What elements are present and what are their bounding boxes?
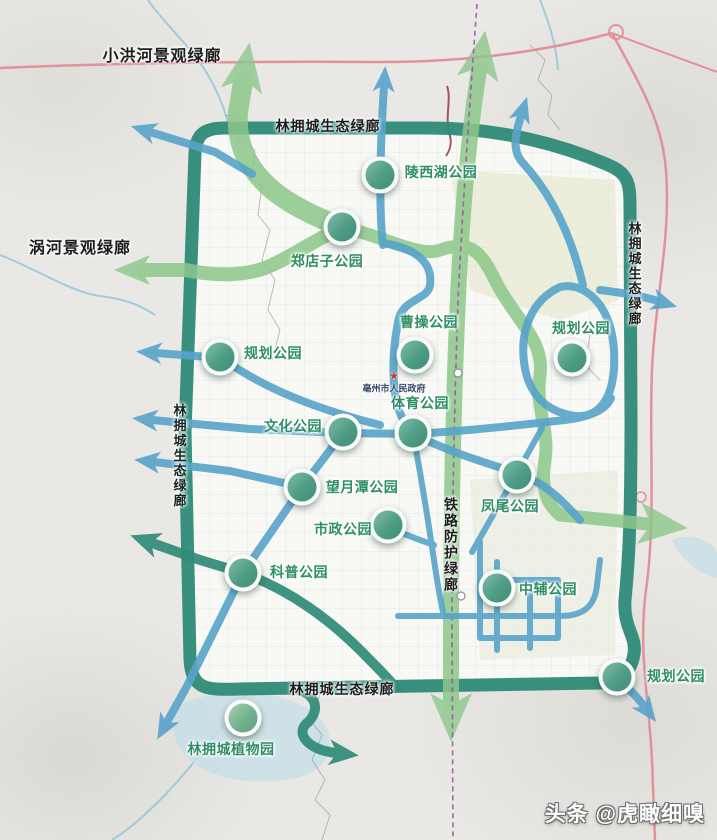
park-marker bbox=[395, 415, 432, 452]
park-label: 规划公园 bbox=[244, 343, 302, 363]
star-icon: ★ bbox=[362, 372, 425, 382]
park-label: 市政公园 bbox=[314, 519, 372, 539]
corridor-label: 林拥城生态绿廊 bbox=[276, 116, 381, 136]
park-dot-icon bbox=[225, 555, 262, 592]
park-marker bbox=[284, 469, 321, 506]
park-dot-icon bbox=[599, 659, 636, 696]
corridor-label: 小洪河景观绿廊 bbox=[102, 42, 221, 66]
park-label: 文化公园 bbox=[264, 416, 322, 436]
park-marker bbox=[325, 414, 362, 451]
park-dot-icon bbox=[362, 157, 399, 194]
park-marker bbox=[370, 507, 407, 544]
park-label: 陵西湖公园 bbox=[405, 162, 478, 182]
park-marker bbox=[397, 337, 434, 374]
park-label: 林拥城植物园 bbox=[188, 739, 275, 759]
park-dot-icon bbox=[284, 469, 321, 506]
park-marker bbox=[324, 209, 361, 246]
park-marker bbox=[362, 157, 399, 194]
park-label: 郑店子公园 bbox=[291, 251, 364, 271]
government-marker: ★ 亳州市人民政府 bbox=[362, 372, 425, 395]
park-marker bbox=[499, 457, 536, 494]
park-dot-icon bbox=[370, 507, 407, 544]
park-marker bbox=[225, 700, 262, 737]
park-dot-icon bbox=[325, 414, 362, 451]
labels-overlay: 陵西湖公园郑店子公园曹操公园规划公园体育公园文化公园望月潭公园市政公园科普公园凤… bbox=[0, 0, 717, 840]
park-marker bbox=[599, 659, 636, 696]
corridor-label: 涡河景观绿廊 bbox=[29, 234, 131, 258]
corridor-label: 林拥城生态绿廊 bbox=[625, 222, 644, 327]
park-label: 中辅公园 bbox=[519, 579, 577, 599]
park-dot-icon bbox=[395, 415, 432, 452]
park-marker bbox=[225, 555, 262, 592]
park-label: 科普公园 bbox=[270, 562, 328, 582]
park-dot-icon bbox=[554, 340, 591, 377]
park-marker bbox=[554, 340, 591, 377]
corridor-label: 铁路防护绿廊 bbox=[441, 497, 461, 593]
park-label: 望月潭公园 bbox=[326, 477, 399, 497]
park-marker bbox=[479, 570, 516, 607]
park-dot-icon bbox=[202, 339, 239, 376]
corridor-label: 林拥城生态绿廊 bbox=[170, 404, 189, 509]
corridor-label: 林拥城生态绿廊 bbox=[290, 679, 395, 699]
park-dot-icon bbox=[499, 457, 536, 494]
park-dot-icon bbox=[479, 570, 516, 607]
planning-map: 陵西湖公园郑店子公园曹操公园规划公园体育公园文化公园望月潭公园市政公园科普公园凤… bbox=[0, 0, 717, 840]
park-dot-icon bbox=[225, 700, 262, 737]
park-dot-icon bbox=[397, 337, 434, 374]
park-label: 规划公园 bbox=[647, 666, 705, 686]
park-marker bbox=[202, 339, 239, 376]
park-dot-icon bbox=[324, 209, 361, 246]
park-label: 凤尾公园 bbox=[481, 496, 539, 516]
government-label: 亳州市人民政府 bbox=[362, 382, 425, 395]
park-label: 曹操公园 bbox=[400, 312, 458, 332]
watermark: 头条 @虎瞰细嗅 bbox=[545, 798, 705, 828]
park-label: 体育公园 bbox=[391, 393, 449, 413]
park-label: 规划公园 bbox=[552, 318, 610, 338]
